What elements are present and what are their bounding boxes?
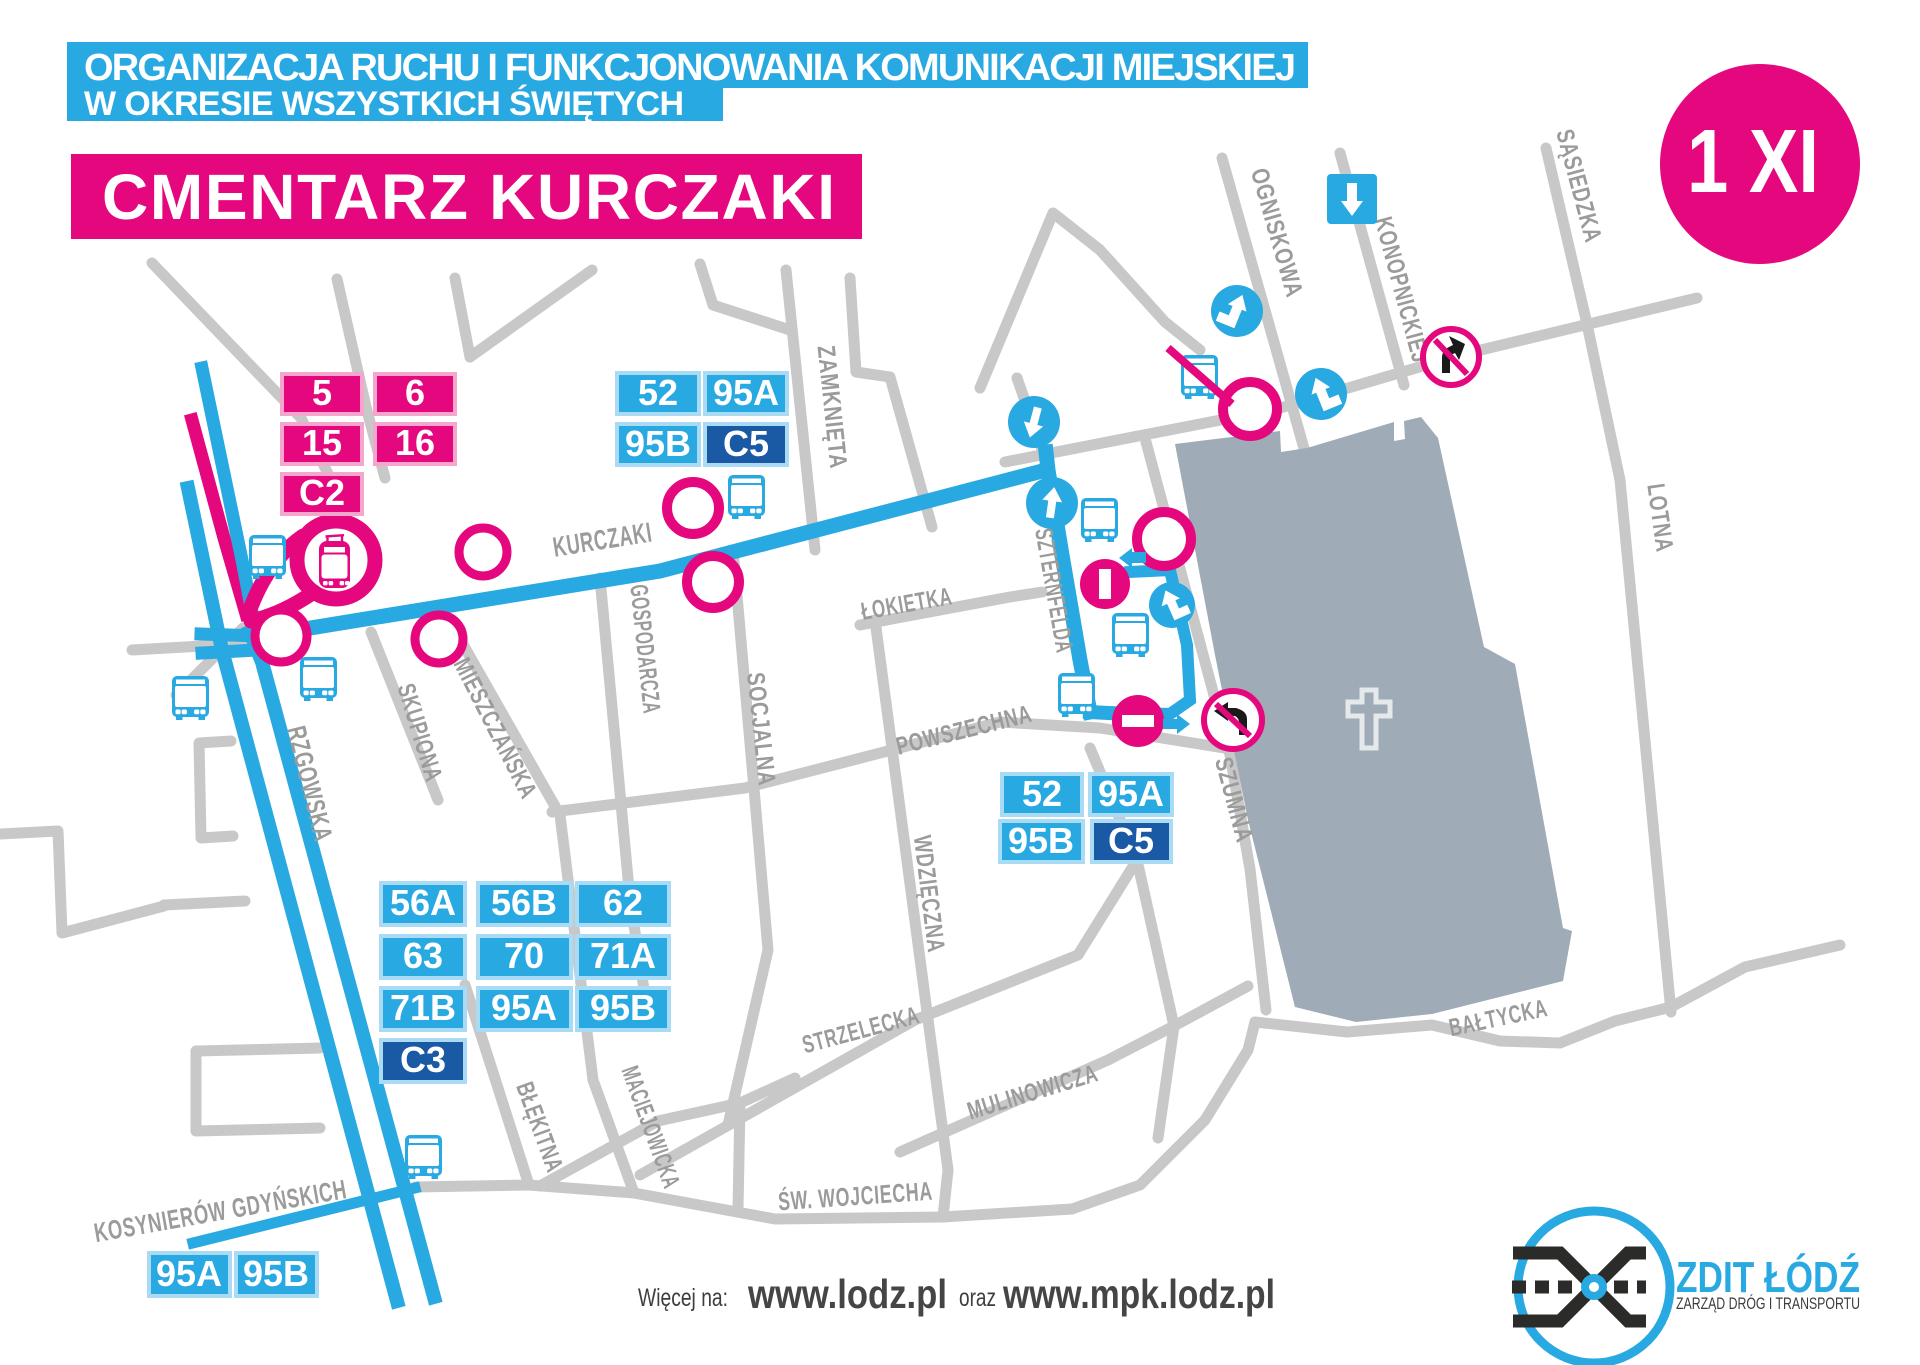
svg-text:www.lodz.pl: www.lodz.pl [747, 1271, 947, 1317]
svg-text:70: 70 [504, 935, 544, 976]
svg-text:95B: 95B [243, 1253, 309, 1294]
svg-text:C3: C3 [400, 1039, 446, 1080]
svg-text:95B: 95B [590, 987, 656, 1028]
svg-text:95A: 95A [491, 987, 557, 1028]
svg-text:5: 5 [312, 372, 332, 413]
svg-text:C2: C2 [299, 472, 345, 513]
svg-text:6: 6 [405, 372, 425, 413]
svg-text:52: 52 [1022, 773, 1062, 814]
svg-text:95A: 95A [713, 372, 779, 413]
svg-text:15: 15 [302, 422, 342, 463]
svg-text:63: 63 [403, 935, 443, 976]
svg-text:www.mpk.lodz.pl: www.mpk.lodz.pl [1002, 1271, 1275, 1317]
svg-text:C5: C5 [723, 423, 769, 464]
svg-text:Więcej na:: Więcej na: [638, 1284, 728, 1312]
svg-text:95B: 95B [1008, 820, 1074, 861]
svg-text:56B: 56B [491, 882, 557, 923]
svg-text:oraz: oraz [959, 1284, 996, 1312]
svg-text:62: 62 [603, 882, 643, 923]
svg-text:C5: C5 [1108, 820, 1154, 861]
svg-text:ORGANIZACJA RUCHU I FUNKCJONOW: ORGANIZACJA RUCHU I FUNKCJONOWANIA KOMUN… [84, 47, 1296, 89]
svg-text:ZARZĄD DRÓG I TRANSPORTU: ZARZĄD DRÓG I TRANSPORTU [1676, 1294, 1860, 1313]
svg-text:16: 16 [395, 422, 435, 463]
svg-text:95A: 95A [1098, 773, 1164, 814]
svg-text:71A: 71A [590, 935, 656, 976]
svg-text:56A: 56A [390, 882, 456, 923]
svg-text:71B: 71B [390, 987, 456, 1028]
svg-text:95A: 95A [156, 1253, 222, 1294]
svg-text:52: 52 [638, 372, 678, 413]
svg-text:1 XI: 1 XI [1687, 112, 1819, 212]
svg-text:W OKRESIE WSZYSTKICH ŚWIĘTYCH: W OKRESIE WSZYSTKICH ŚWIĘTYCH [84, 85, 684, 123]
svg-text:95B: 95B [625, 423, 691, 464]
